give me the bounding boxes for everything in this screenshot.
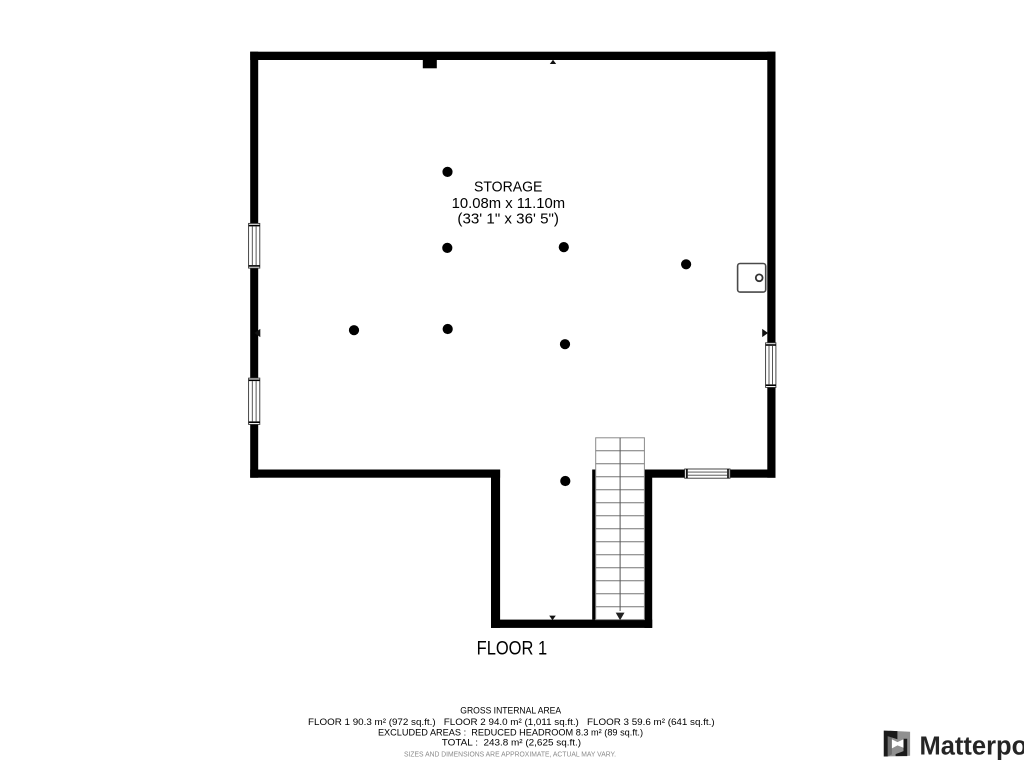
svg-text:GROSS INTERNAL AREA: GROSS INTERNAL AREA [460,706,562,716]
svg-text:SIZES AND DIMENSIONS ARE APPRO: SIZES AND DIMENSIONS ARE APPROXIMATE, AC… [404,749,616,758]
svg-text:Matterport: Matterport [920,733,1024,761]
svg-text:FLOOR 1: FLOOR 1 [477,638,548,659]
svg-text:STORAGE: STORAGE [474,180,543,196]
svg-text:(33' 1" x 36' 5"): (33' 1" x 36' 5") [457,211,559,227]
svg-text:FLOOR 1 90.3 m² (972 sq.ft.): FLOOR 1 90.3 m² (972 sq.ft.) FLOOR 2 94.… [308,717,715,727]
svg-text:TOTAL : 243.8 m² (2,625 sq.ft: TOTAL : 243.8 m² (2,625 sq.ft.) [442,738,581,748]
svg-text:EXCLUDED AREAS : REDUCED HEAD: EXCLUDED AREAS : REDUCED HEADROOM 8.3 m²… [378,728,643,738]
svg-text:10.08m x 11.10m: 10.08m x 11.10m [452,196,566,212]
